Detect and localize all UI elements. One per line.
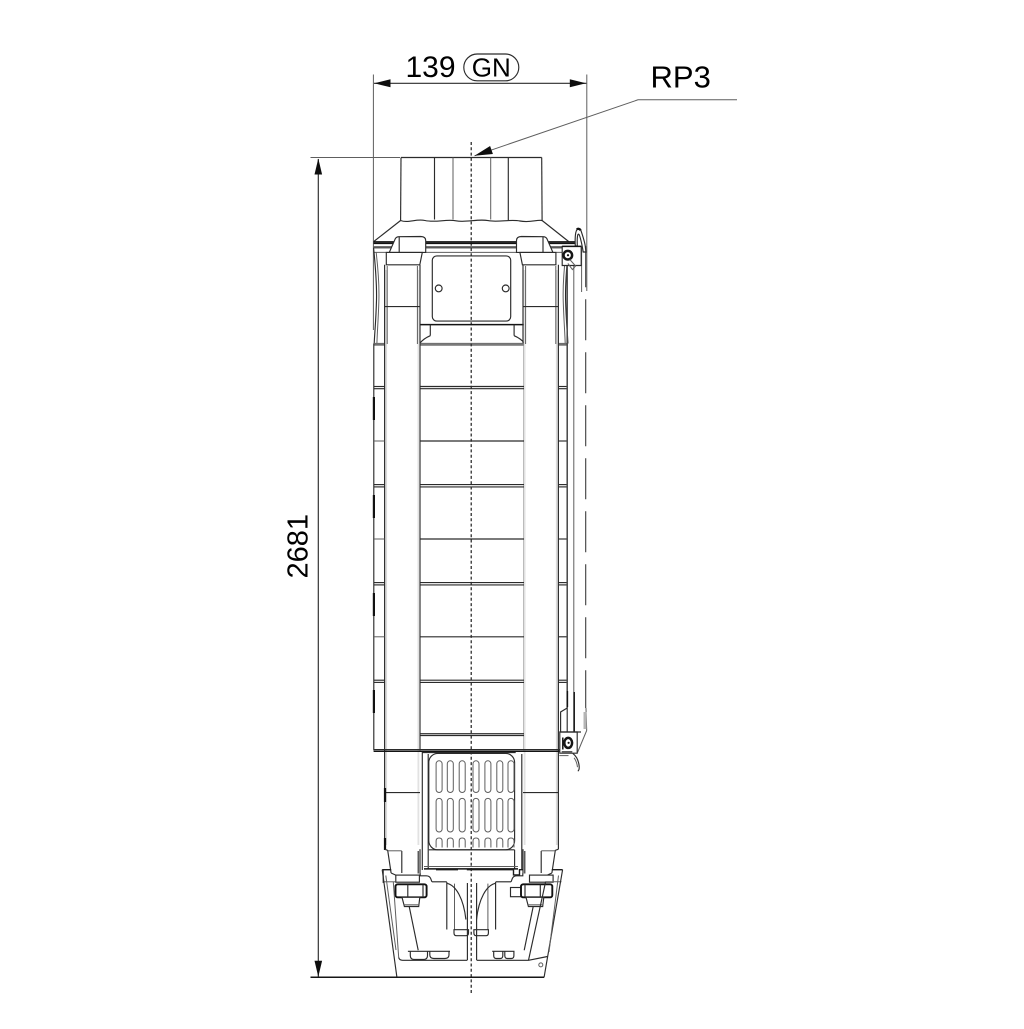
svg-text:GN: GN — [472, 53, 511, 83]
svg-text:2681: 2681 — [283, 514, 315, 579]
svg-text:139: 139 — [405, 51, 455, 84]
svg-text:RP3: RP3 — [651, 59, 711, 94]
